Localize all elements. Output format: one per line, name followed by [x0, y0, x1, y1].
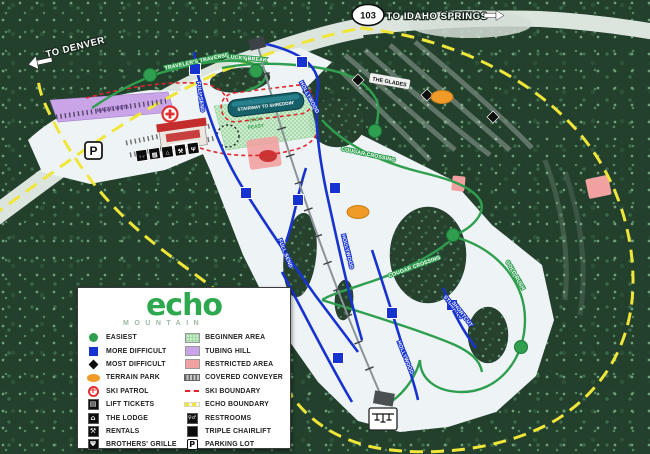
easiest-icon: [89, 333, 98, 342]
legend-item-ski-patrol: +SKI PATROL: [85, 385, 182, 398]
legend-label: SKI BOUNDARY: [205, 388, 260, 395]
to-idaho-springs-label: TO IDAHO SPRINGS: [386, 11, 487, 22]
legend-label: TUBING HILL: [205, 348, 251, 355]
restrooms-icon: ♀♂: [187, 413, 198, 424]
logo-tagline: MOUNTAIN: [123, 320, 283, 327]
logo-wordmark: echo: [85, 291, 283, 321]
legend-item-triple-chairlift: TRIPLE CHAIRLIFT: [184, 425, 283, 438]
legend-label: ECHO BOUNDARY: [205, 401, 269, 408]
lift-tickets-icon: ▤: [88, 399, 99, 410]
legend-label: BEGINNER AREA: [205, 334, 265, 341]
parking-lot-icon: P: [187, 439, 198, 450]
restricted-area-icon: [185, 359, 200, 369]
grille-icon: Ψ: [88, 439, 99, 450]
legend-item-lift-tickets: ▤LIFT TICKETS: [85, 398, 182, 411]
legend-label: THE LODGE: [106, 415, 148, 422]
more-difficult-icon: [89, 347, 98, 356]
legend-item-most-difficult: MOST DIFFICULT: [85, 358, 182, 371]
legend-label: MOST DIFFICULT: [106, 361, 166, 368]
legend-item-easiest: EASIEST: [85, 331, 182, 344]
legend-item-tubing-hill: TUBING HILL: [184, 344, 283, 357]
chairlift-icon-box: [369, 408, 397, 430]
beginner-area-icon: [185, 333, 200, 343]
legend-item-echo-boundary: ECHO BOUNDARY: [184, 398, 283, 411]
legend-label: TRIPLE CHAIRLIFT: [205, 428, 271, 435]
legend-label: PARKING LOT: [205, 441, 254, 448]
legend-item-restrooms: ♀♂RESTROOMS: [184, 411, 283, 424]
echo-boundary-icon: [184, 402, 200, 407]
legend-label: TERRAIN PARK: [106, 374, 160, 381]
to-denver-label: TO DENVER: [45, 35, 107, 60]
parking-sign: P: [85, 142, 102, 159]
terrain-park-icon: [87, 374, 100, 382]
ski-patrol-icon: +: [88, 386, 99, 397]
legend-item-beginner-area: BEGINNER AREA: [184, 331, 283, 344]
legend-label: RENTALS: [106, 428, 139, 435]
legend-item-parking-lot: PPARKING LOT: [184, 438, 283, 451]
legend-label: LIFT TICKETS: [106, 401, 154, 408]
restrooms-icon: ♀♂: [138, 154, 145, 160]
tubing-hill-icon: [185, 346, 200, 356]
the-glades-label-box: THE GLADES: [369, 73, 411, 90]
trail-map: P ♀♂ ▤ ⌂ ⚒ Ψ: [0, 0, 650, 454]
legend-item-rentals: ⚒RENTALS: [85, 425, 182, 438]
legend-label: SKI PATROL: [106, 388, 149, 395]
rentals-icon: ⚒: [88, 426, 99, 437]
legend-column-right: BEGINNER AREA TUBING HILL RESTRICTED ARE…: [184, 331, 283, 452]
route-103-number: 103: [360, 11, 376, 22]
ski-boundary-icon: [185, 390, 199, 392]
triple-chairlift-icon: [187, 426, 198, 437]
lift-tickets-icon: ▤: [152, 152, 159, 159]
legend-label: MORE DIFFICULT: [106, 348, 166, 355]
legend-item-the-lodge: ⌂THE LODGE: [85, 411, 182, 424]
grille-icon: Ψ: [191, 147, 197, 154]
legend-column-left: EASIEST MORE DIFFICULT MOST DIFFICULT TE…: [85, 331, 182, 452]
covered-conveyer-icon: [184, 374, 200, 381]
legend-item-brothers-grille: ΨBROTHERS' GRILLE: [85, 438, 182, 451]
legend-label: BROTHERS' GRILLE: [106, 441, 177, 448]
echo-logo: echo MOUNTAIN: [85, 291, 283, 327]
lodge-icon: ⌂: [88, 413, 99, 424]
legend-label: RESTRICTED AREA: [205, 361, 273, 368]
legend-label: COVERED CONVEYER: [205, 374, 283, 381]
legend-item-more-difficult: MORE DIFFICULT: [85, 344, 182, 357]
ski-patrol-marker: [163, 107, 178, 122]
route-103-shield: 103: [352, 5, 384, 26]
legend-item-covered-conveyer: COVERED CONVEYER: [184, 371, 283, 384]
legend-panel: echo MOUNTAIN EASIEST MORE DIFFICULT MOS…: [77, 287, 291, 449]
legend-item-terrain-park: TERRAIN PARK: [85, 371, 182, 384]
legend-item-ski-boundary: SKI BOUNDARY: [184, 385, 283, 398]
legend-label: RESTROOMS: [205, 415, 251, 422]
parking-letter: P: [89, 144, 97, 158]
most-difficult-icon: [88, 360, 98, 370]
legend-item-restricted-area: RESTRICTED AREA: [184, 358, 283, 371]
legend-label: EASIEST: [106, 334, 137, 341]
